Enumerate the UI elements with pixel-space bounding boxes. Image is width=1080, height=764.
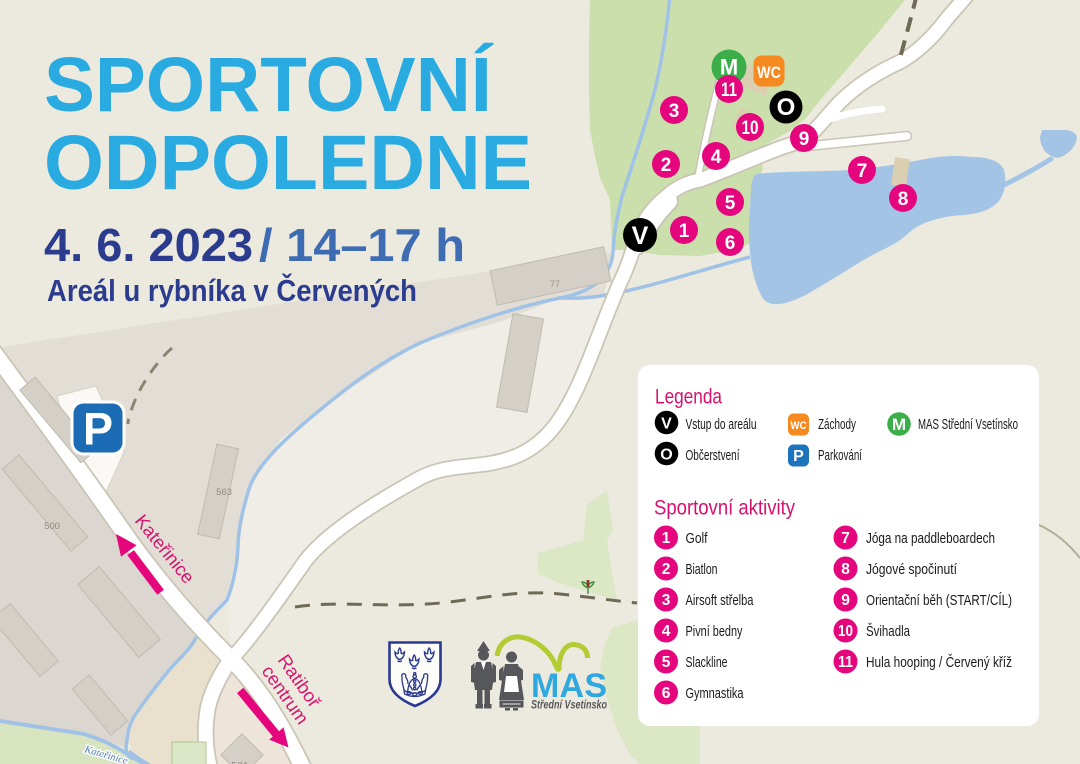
svg-text:1: 1 <box>662 530 671 547</box>
svg-text:MAS Střední Vsetínsko: MAS Střední Vsetínsko <box>918 417 1018 433</box>
svg-text:Jógové spočinutí: Jógové spočinutí <box>866 562 957 578</box>
svg-text:6: 6 <box>662 685 671 702</box>
svg-text:ODPOLEDNE: ODPOLEDNE <box>44 120 532 206</box>
svg-text:Gymnastika: Gymnastika <box>686 686 745 702</box>
svg-text:2: 2 <box>662 561 671 578</box>
svg-text:O: O <box>660 447 672 464</box>
svg-text:4: 4 <box>662 623 671 640</box>
svg-text:3: 3 <box>662 592 671 609</box>
svg-text:Sportovní aktivity: Sportovní aktivity <box>654 497 795 520</box>
svg-text:WC: WC <box>791 420 807 432</box>
svg-text:9: 9 <box>841 592 850 609</box>
svg-text:Biatlon: Biatlon <box>686 562 718 578</box>
svg-text:Golf: Golf <box>686 531 709 547</box>
svg-text:M: M <box>892 415 906 434</box>
svg-text:Švihadla: Švihadla <box>866 623 911 640</box>
svg-text:Parkování: Parkování <box>818 448 862 464</box>
svg-text:4. 6. 2023: 4. 6. 2023 <box>44 219 253 271</box>
svg-text:5: 5 <box>662 654 671 671</box>
svg-text:11: 11 <box>838 654 853 671</box>
svg-text:Občerstvení: Občerstvení <box>686 448 740 464</box>
svg-text:V: V <box>661 416 672 433</box>
svg-text:Jóga na paddleboardech: Jóga na paddleboardech <box>866 531 995 547</box>
svg-text:Pivní bedny: Pivní bedny <box>686 624 744 640</box>
svg-text:Orientační běh (START/CÍL): Orientační běh (START/CÍL) <box>866 592 1012 609</box>
svg-text:Hula hooping / Červený kříž: Hula hooping / Červený kříž <box>866 654 1012 671</box>
svg-text:10: 10 <box>838 623 853 640</box>
svg-text:/ 14–17 h: / 14–17 h <box>259 219 465 271</box>
svg-text:Vstup do areálu: Vstup do areálu <box>686 417 757 433</box>
svg-text:Airsoft střelba: Airsoft střelba <box>686 593 755 609</box>
svg-text:Legenda: Legenda <box>655 386 722 409</box>
svg-text:7: 7 <box>841 530 850 547</box>
svg-text:P: P <box>793 448 804 465</box>
svg-text:SPORTOVNÍ: SPORTOVNÍ <box>44 42 495 128</box>
svg-text:8: 8 <box>841 561 850 578</box>
svg-text:Areál u rybníka v Červených: Areál u rybníka v Červených <box>47 272 417 308</box>
svg-text:Slackline: Slackline <box>686 655 728 671</box>
svg-text:Záchody: Záchody <box>818 417 857 433</box>
